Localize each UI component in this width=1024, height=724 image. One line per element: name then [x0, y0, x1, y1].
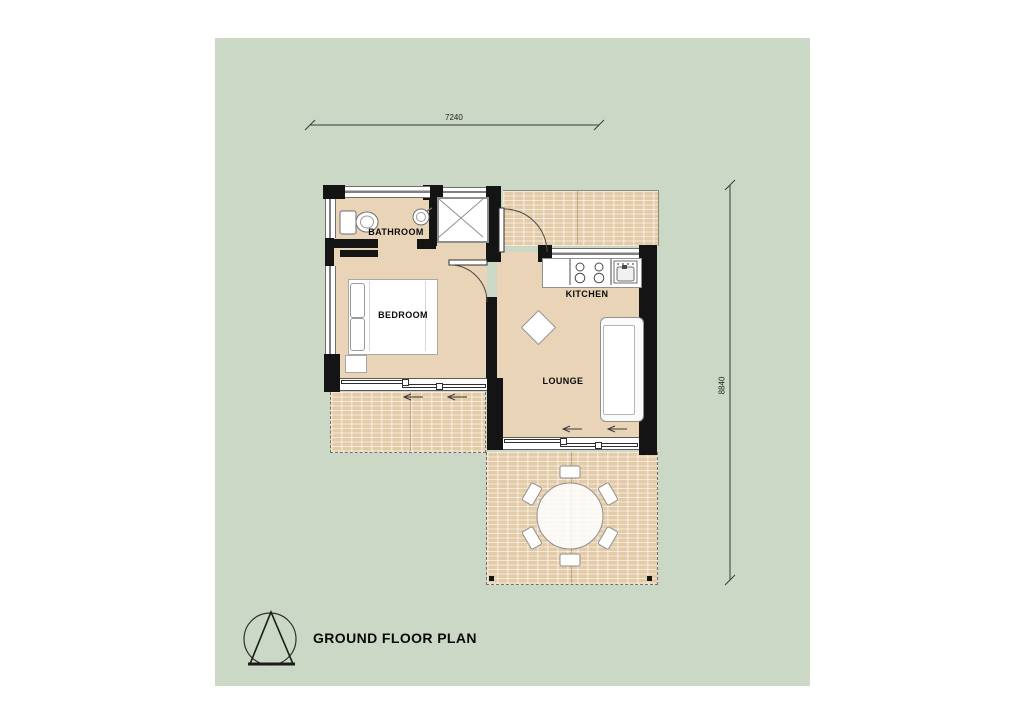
door-handle-icon — [436, 383, 443, 390]
terrace-bedroom-deck — [330, 392, 486, 453]
sliding-leaf — [341, 380, 409, 384]
bedside-bench-icon — [345, 355, 367, 373]
sliding-door-lounge — [503, 437, 639, 450]
pillow-icon — [350, 283, 365, 318]
sliding-leaf — [504, 439, 566, 443]
wall-segment — [340, 250, 378, 257]
dimension-width-label: 7240 — [445, 113, 463, 122]
wall-segment — [486, 297, 497, 380]
bed-fold-line — [369, 281, 370, 351]
deck-seam — [410, 392, 411, 451]
wall-segment — [332, 239, 378, 248]
deck-post — [489, 576, 494, 581]
deck-post — [647, 576, 652, 581]
terrace-entry-deck — [503, 190, 659, 246]
door-handle-icon — [595, 442, 602, 449]
door-handle-icon — [402, 379, 409, 386]
sofa-seat — [603, 325, 635, 415]
room-label-kitchen: KITCHEN — [566, 289, 609, 299]
room-label-bedroom: BEDROOM — [378, 310, 428, 320]
window — [345, 186, 430, 198]
sliding-door-bedroom — [340, 378, 487, 391]
window — [325, 266, 336, 354]
wall-segment — [429, 186, 437, 246]
room-label-lounge: LOUNGE — [543, 376, 584, 386]
terrace-dining-deck — [486, 452, 658, 585]
plan-title: GROUND FLOOR PLAN — [313, 630, 477, 646]
wall-segment — [487, 378, 503, 450]
wall-segment — [323, 185, 345, 199]
sliding-leaf — [402, 384, 486, 388]
shower-icon — [437, 197, 489, 243]
counter-icon — [542, 258, 642, 288]
wall-segment — [324, 354, 340, 392]
room-label-bathroom: BATHROOM — [368, 227, 424, 237]
pillow-icon — [350, 318, 365, 351]
deck-seam — [571, 452, 572, 583]
window — [325, 199, 336, 238]
deck-seam — [577, 191, 578, 244]
door-handle-icon — [560, 438, 567, 445]
dimension-height-label: 8840 — [717, 377, 726, 395]
floor-plan-sheet: BATHROOM BEDROOM KITCHEN LOUNGE 7240 884… — [0, 0, 1024, 724]
